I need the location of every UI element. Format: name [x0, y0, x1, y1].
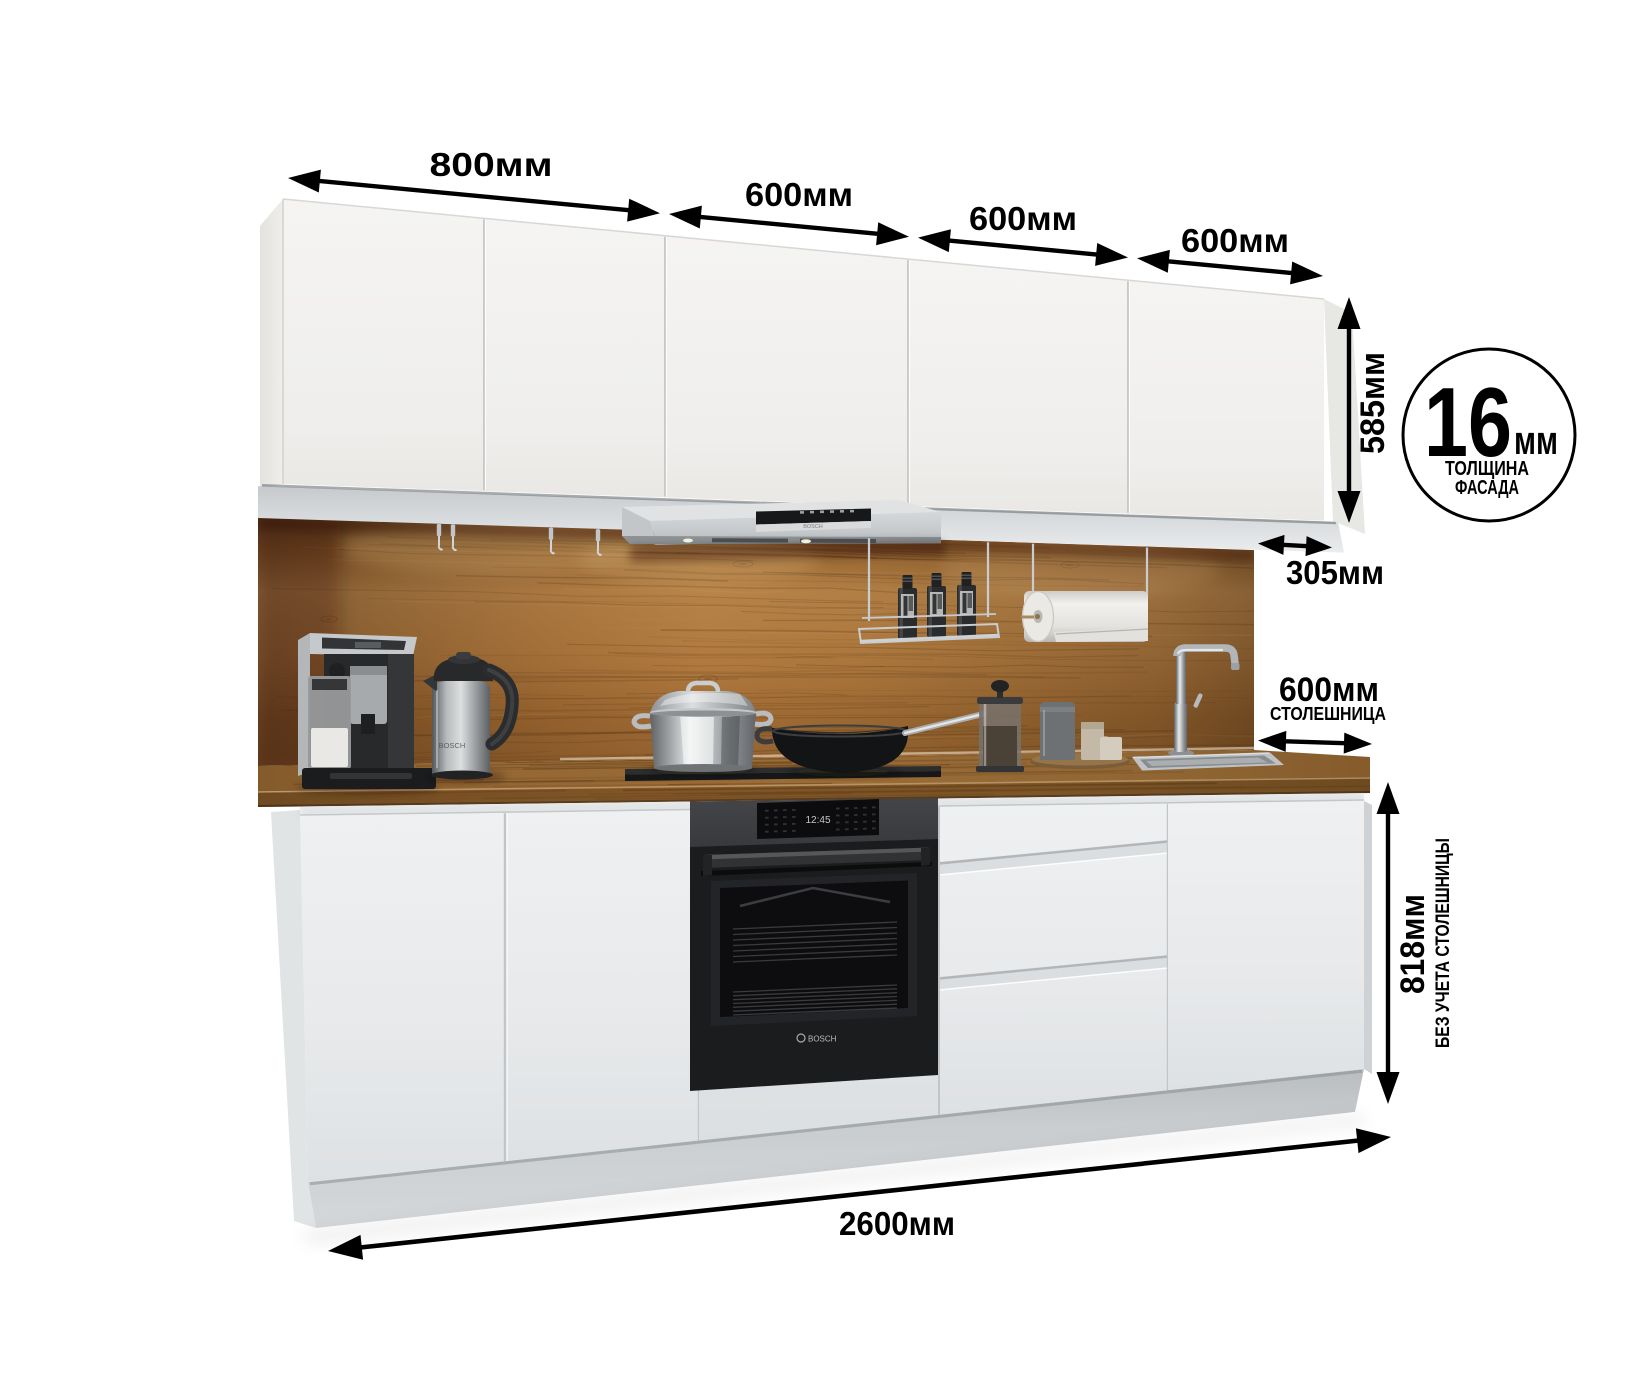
svg-text:818мм: 818мм — [1394, 894, 1432, 994]
svg-text:СТОЛЕШНИЦА: СТОЛЕШНИЦА — [1270, 704, 1386, 724]
svg-text:600мм: 600мм — [969, 200, 1077, 237]
svg-text:585мм: 585мм — [1354, 352, 1392, 454]
svg-text:800мм: 800мм — [430, 146, 553, 183]
svg-text:BOSCH: BOSCH — [808, 1035, 837, 1044]
svg-text:мм: мм — [1514, 419, 1558, 463]
svg-text:ФАСАДА: ФАСАДА — [1455, 477, 1519, 499]
svg-text:12:45: 12:45 — [805, 815, 830, 826]
svg-text:305мм: 305мм — [1286, 554, 1384, 591]
svg-text:BOSCH: BOSCH — [439, 741, 466, 750]
svg-text:600мм: 600мм — [745, 176, 853, 213]
svg-text:600мм: 600мм — [1181, 222, 1289, 259]
svg-text:2600мм: 2600мм — [839, 1205, 955, 1242]
svg-text:BOSCH: BOSCH — [803, 524, 823, 530]
svg-text:БЕЗ УЧЕТА СТОЛЕШНИЦЫ: БЕЗ УЧЕТА СТОЛЕШНИЦЫ — [1433, 838, 1454, 1048]
